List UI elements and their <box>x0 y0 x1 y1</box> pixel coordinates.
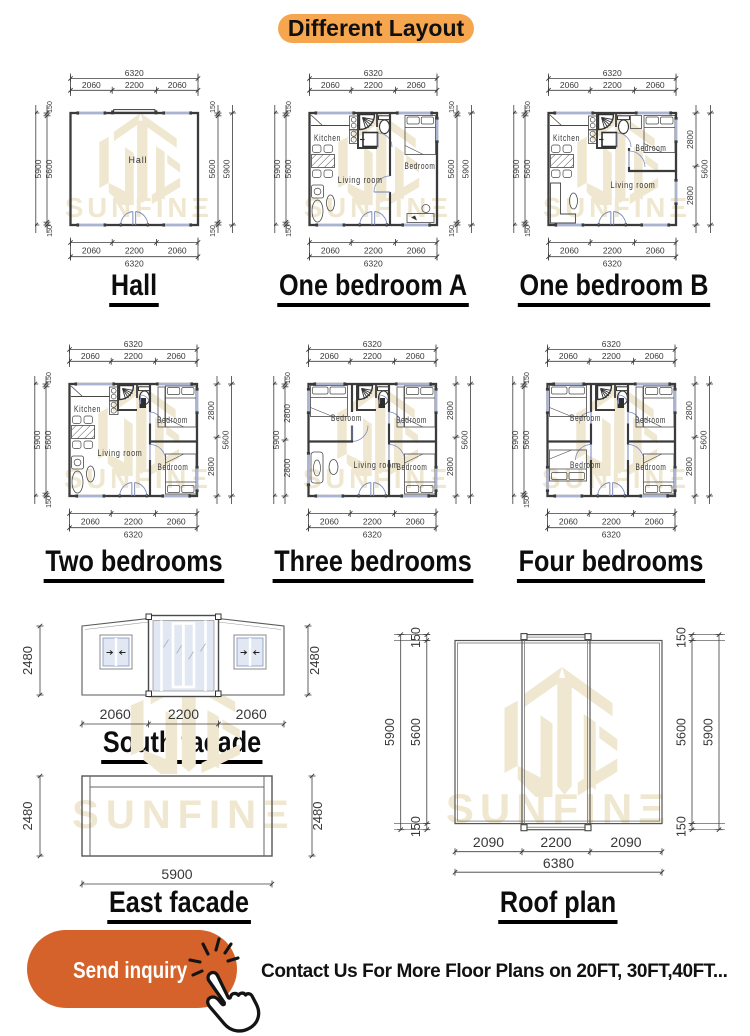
svg-text:2060: 2060 <box>320 246 339 256</box>
svg-text:2200: 2200 <box>124 80 143 90</box>
svg-text:2200: 2200 <box>124 246 143 256</box>
svg-text:150: 150 <box>448 225 455 237</box>
svg-text:2060: 2060 <box>406 246 425 256</box>
svg-text:2090: 2090 <box>473 834 504 850</box>
svg-text:150: 150 <box>46 372 53 384</box>
svg-text:6320: 6320 <box>601 530 620 540</box>
svg-text:Living room: Living room <box>97 448 142 458</box>
svg-text:2200: 2200 <box>363 80 382 90</box>
svg-text:2060: 2060 <box>81 246 100 256</box>
svg-text:2060: 2060 <box>559 246 578 256</box>
svg-text:2060: 2060 <box>645 80 664 90</box>
svg-text:Bedroom: Bedroom <box>396 415 427 425</box>
svg-text:5600: 5600 <box>521 430 531 449</box>
svg-text:2200: 2200 <box>363 517 382 527</box>
svg-text:5600: 5600 <box>206 159 216 178</box>
svg-text:2800: 2800 <box>282 404 292 423</box>
svg-text:2800: 2800 <box>282 458 292 477</box>
svg-text:2200: 2200 <box>540 834 571 850</box>
svg-text:Kitchen: Kitchen <box>553 133 580 143</box>
svg-text:150: 150 <box>285 372 292 384</box>
svg-text:6380: 6380 <box>543 855 574 871</box>
svg-text:5900: 5900 <box>512 430 520 449</box>
svg-text:5900: 5900 <box>35 159 43 178</box>
svg-text:150: 150 <box>525 101 532 113</box>
svg-text:6320: 6320 <box>363 69 382 78</box>
svg-text:5600: 5600 <box>698 430 708 449</box>
svg-text:2200: 2200 <box>168 706 199 722</box>
svg-text:2200: 2200 <box>601 517 620 527</box>
svg-text:6320: 6320 <box>602 69 621 78</box>
svg-text:2060: 2060 <box>644 517 663 527</box>
svg-text:Bedroom: Bedroom <box>635 415 666 425</box>
svg-text:2060: 2060 <box>558 517 577 527</box>
svg-text:5600: 5600 <box>220 430 230 449</box>
svg-text:Bedroom: Bedroom <box>635 462 666 472</box>
svg-text:Kitchen: Kitchen <box>74 404 101 414</box>
svg-text:2060: 2060 <box>236 706 267 722</box>
svg-text:2800: 2800 <box>445 457 455 476</box>
svg-text:5600: 5600 <box>445 159 455 178</box>
svg-text:6320: 6320 <box>602 259 621 269</box>
svg-text:2800: 2800 <box>684 186 694 205</box>
svg-text:5900: 5900 <box>513 159 521 178</box>
svg-text:2060: 2060 <box>320 80 339 90</box>
svg-text:2800: 2800 <box>205 401 215 420</box>
svg-text:6320: 6320 <box>363 259 382 269</box>
svg-text:2090: 2090 <box>610 834 641 850</box>
svg-text:2200: 2200 <box>602 80 621 90</box>
svg-text:2060: 2060 <box>100 706 131 722</box>
svg-text:Bedroom: Bedroom <box>404 161 435 171</box>
svg-text:2480: 2480 <box>307 646 322 675</box>
svg-text:150: 150 <box>209 225 216 237</box>
svg-text:2800: 2800 <box>684 130 694 149</box>
svg-text:2060: 2060 <box>406 517 425 527</box>
svg-text:6320: 6320 <box>363 530 382 540</box>
svg-text:150: 150 <box>209 101 216 113</box>
svg-text:2060: 2060 <box>559 80 578 90</box>
svg-text:2060: 2060 <box>166 351 185 361</box>
svg-text:2200: 2200 <box>602 246 621 256</box>
svg-text:2800: 2800 <box>445 401 455 420</box>
svg-text:2200: 2200 <box>123 517 142 527</box>
svg-text:2060: 2060 <box>406 351 425 361</box>
svg-text:150: 150 <box>409 816 423 837</box>
svg-text:2200: 2200 <box>363 351 382 361</box>
svg-text:150: 150 <box>675 816 689 837</box>
svg-text:SUNFINΞ: SUNFINΞ <box>64 192 212 223</box>
svg-text:2480: 2480 <box>310 802 325 831</box>
svg-text:5600: 5600 <box>409 718 423 746</box>
svg-text:2200: 2200 <box>123 351 142 361</box>
svg-text:5600: 5600 <box>522 159 532 178</box>
svg-text:2060: 2060 <box>80 351 99 361</box>
svg-text:5600: 5600 <box>283 159 293 178</box>
svg-text:2060: 2060 <box>406 80 425 90</box>
svg-text:SUNFINΞ: SUNFINΞ <box>63 463 211 494</box>
svg-text:2060: 2060 <box>80 517 99 527</box>
svg-text:2060: 2060 <box>644 351 663 361</box>
svg-text:Bedroom: Bedroom <box>157 415 188 425</box>
svg-text:SUNFINΞ: SUNFINΞ <box>541 463 689 494</box>
svg-text:Kitchen: Kitchen <box>314 133 341 143</box>
svg-text:150: 150 <box>286 101 293 113</box>
svg-text:150: 150 <box>448 101 455 113</box>
svg-text:Bedroom: Bedroom <box>570 460 601 470</box>
svg-text:6320: 6320 <box>363 340 382 349</box>
svg-text:SUNFINΞ: SUNFINΞ <box>446 785 671 832</box>
svg-text:150: 150 <box>675 627 689 648</box>
svg-text:2060: 2060 <box>166 517 185 527</box>
svg-text:Living room: Living room <box>337 175 382 185</box>
svg-text:150: 150 <box>409 627 423 648</box>
svg-text:Bedroom: Bedroom <box>397 462 428 472</box>
svg-text:150: 150 <box>524 496 531 508</box>
svg-text:2800: 2800 <box>205 457 215 476</box>
svg-text:2060: 2060 <box>320 351 339 361</box>
svg-text:2060: 2060 <box>558 351 577 361</box>
svg-text:Bedroom: Bedroom <box>157 462 188 472</box>
svg-text:150: 150 <box>286 225 293 237</box>
svg-text:6320: 6320 <box>123 340 142 349</box>
svg-text:6320: 6320 <box>124 69 143 78</box>
svg-text:Living room: Living room <box>354 460 399 470</box>
svg-text:150: 150 <box>525 225 532 237</box>
svg-text:150: 150 <box>524 372 531 384</box>
svg-text:Bedroom: Bedroom <box>570 413 601 423</box>
svg-text:2060: 2060 <box>645 246 664 256</box>
svg-text:2060: 2060 <box>320 517 339 527</box>
svg-text:2060: 2060 <box>167 246 186 256</box>
svg-text:6320: 6320 <box>601 340 620 349</box>
svg-text:Hall: Hall <box>128 155 147 165</box>
svg-text:5900: 5900 <box>161 866 192 882</box>
svg-text:5600: 5600 <box>675 718 689 746</box>
svg-text:Bedroom: Bedroom <box>635 143 666 153</box>
svg-text:150: 150 <box>47 101 54 113</box>
svg-text:2480: 2480 <box>20 802 35 831</box>
svg-text:5600: 5600 <box>459 430 469 449</box>
svg-text:2800: 2800 <box>683 457 693 476</box>
svg-text:5900: 5900 <box>460 159 470 178</box>
svg-text:6320: 6320 <box>123 530 142 540</box>
svg-text:5600: 5600 <box>44 159 54 178</box>
svg-text:2060: 2060 <box>81 80 100 90</box>
svg-text:5600: 5600 <box>699 159 709 178</box>
svg-text:150: 150 <box>47 225 54 237</box>
svg-text:Living room: Living room <box>610 180 655 190</box>
svg-text:SUNFINΞ: SUNFINΞ <box>542 192 690 223</box>
svg-text:2480: 2480 <box>20 646 35 675</box>
svg-text:5900: 5900 <box>274 159 282 178</box>
svg-text:6320: 6320 <box>124 259 143 269</box>
svg-text:5900: 5900 <box>273 430 281 449</box>
svg-text:5900: 5900 <box>34 430 42 449</box>
svg-text:2200: 2200 <box>601 351 620 361</box>
svg-text:2800: 2800 <box>683 401 693 420</box>
svg-text:5900: 5900 <box>383 718 397 746</box>
svg-text:5900: 5900 <box>702 718 716 746</box>
svg-text:2060: 2060 <box>167 80 186 90</box>
svg-text:5900: 5900 <box>221 159 231 178</box>
svg-text:2200: 2200 <box>363 246 382 256</box>
svg-text:Bedroom: Bedroom <box>331 413 362 423</box>
svg-text:150: 150 <box>46 496 53 508</box>
svg-text:5600: 5600 <box>43 430 53 449</box>
